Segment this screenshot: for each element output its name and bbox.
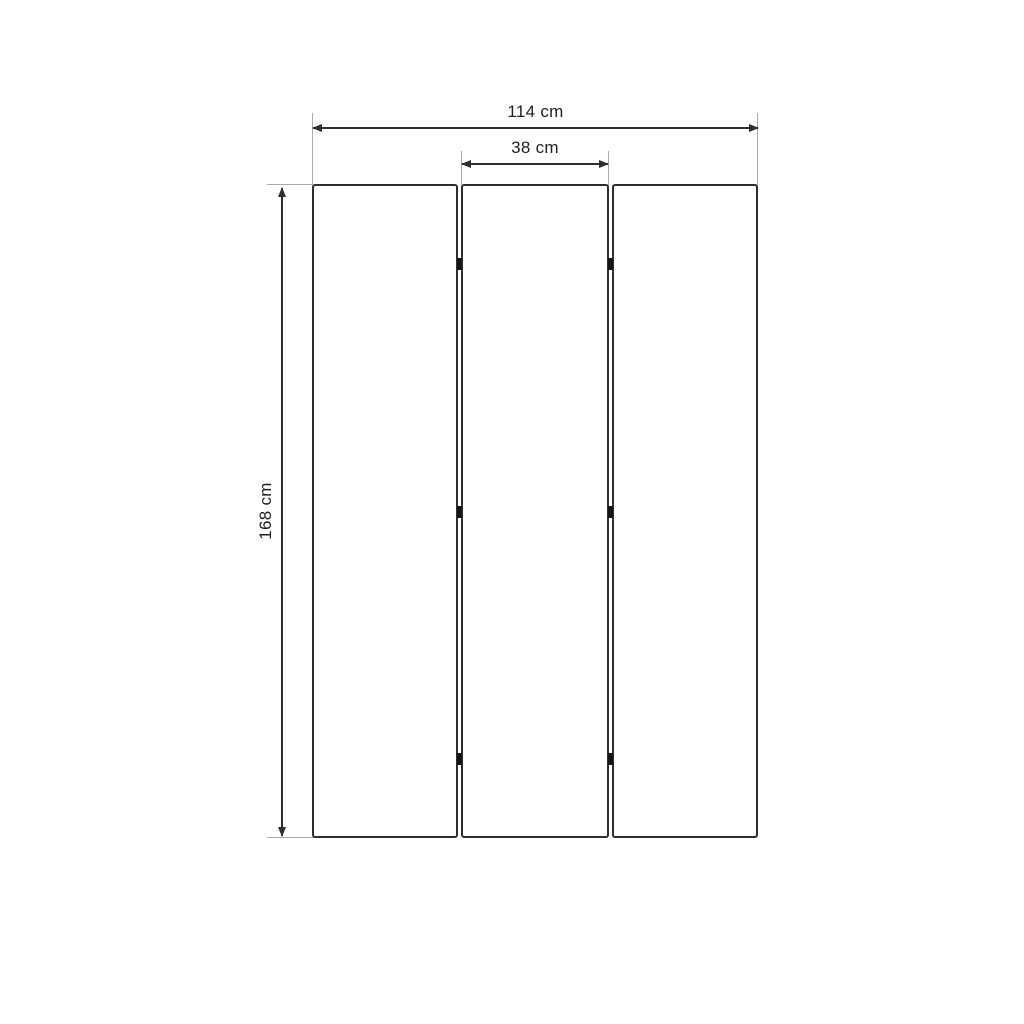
left-panel bbox=[312, 184, 458, 838]
arrowhead-right-icon bbox=[749, 124, 759, 132]
overall-width-label: 114 cm bbox=[313, 102, 758, 122]
overall-width-dimension-line bbox=[313, 127, 758, 129]
arrowhead-left-icon bbox=[312, 124, 322, 132]
hinge-icon bbox=[457, 506, 462, 518]
panel-width-label: 38 cm bbox=[462, 138, 608, 158]
hinge-icon bbox=[608, 753, 613, 765]
arrowhead-down-icon bbox=[278, 827, 286, 837]
dimension-drawing: 114 cm 38 cm 168 cm bbox=[0, 0, 1024, 1024]
hinge-icon bbox=[457, 753, 462, 765]
hinge-icon bbox=[608, 258, 613, 270]
overall-height-label: 168 cm bbox=[256, 482, 276, 540]
middle-panel bbox=[461, 184, 609, 838]
overall-height-dimension-line bbox=[281, 188, 283, 836]
arrowhead-right-icon bbox=[599, 160, 609, 168]
hinge-icon bbox=[608, 506, 613, 518]
extension-line-panel-width-right bbox=[608, 151, 609, 185]
extension-line-height-bottom bbox=[267, 837, 314, 838]
arrowhead-up-icon bbox=[278, 187, 286, 197]
right-panel bbox=[612, 184, 758, 838]
panel-width-dimension-line bbox=[462, 163, 608, 165]
extension-line-height-top bbox=[267, 184, 313, 185]
hinge-icon bbox=[457, 258, 462, 270]
arrowhead-left-icon bbox=[461, 160, 471, 168]
